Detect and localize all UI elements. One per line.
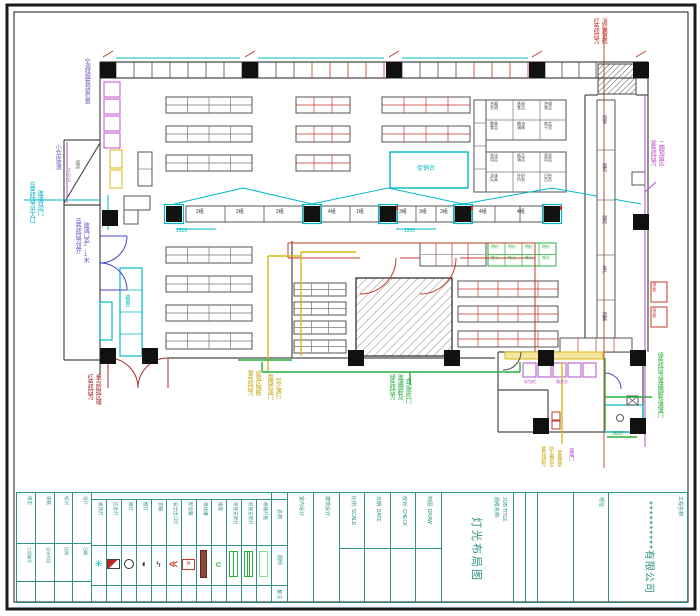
company-name: **********有限公司: [643, 501, 653, 594]
title-block-divider: [339, 548, 441, 549]
sign-col-value: 日期: [83, 547, 87, 555]
legend-item-name: 双管支架灯: [248, 502, 253, 525]
legend-item-name: 格栅灯盘: [263, 502, 268, 520]
socket-icon: ⊂: [212, 547, 225, 581]
job-title-label: 图纸名称:: [493, 497, 498, 518]
legend-item-name: 筒灯: [128, 502, 133, 511]
address-label: 地址:: [598, 497, 603, 508]
title-block: 工程名称: **********有限公司 地址: 图纸名称: JOB TITLE…: [16, 492, 688, 603]
grille-lamp-icon: [257, 547, 270, 581]
double-tube-light-icon: [242, 547, 255, 581]
sign-col-value: 工程编号: [27, 547, 31, 563]
legend-item-name: 单管支架灯: [233, 502, 238, 525]
exit-light-icon: ≪: [167, 547, 180, 581]
cad-drawing-sheet: 空调排烟管预留位置小仓库坡道蓝色线段为出入口玻璃自动门蓝色线段为双开玻璃门宽2.…: [0, 0, 700, 616]
title-block-divider: [17, 581, 91, 582]
busbar-icon: [197, 547, 210, 581]
sign-col-label: 审定: [27, 496, 32, 505]
ceiling-lamp-icon: ✳: [92, 547, 105, 581]
title-block-divider: [537, 493, 538, 602]
legend-item-name: 安全出口灯: [173, 502, 178, 525]
wall-lamp-icon: ◖: [137, 547, 150, 581]
legend-item-name: 应急灯: [113, 502, 118, 516]
job-title: 灯光布局图: [470, 517, 481, 582]
sign-col-value: 设计阶段: [46, 547, 50, 563]
title-block-divider: [35, 493, 36, 602]
downlight-icon: [122, 547, 135, 581]
emergency-light-icon: [107, 547, 120, 581]
single-tube-light-icon: [227, 547, 240, 581]
speaker-icon: ϟ: [152, 547, 165, 581]
field-label: 校对: CHECK: [401, 496, 406, 526]
title-block-divider: [17, 543, 91, 544]
title-block-divider: [287, 493, 288, 602]
sign-col-label: 设计: [82, 496, 87, 505]
title-block-divider: [608, 493, 609, 602]
field-label: 室内设计: [298, 496, 303, 516]
distribution-box-icon: ✕: [182, 547, 195, 581]
title-block-divider: [525, 493, 526, 602]
sign-col-value: 比例: [64, 547, 68, 555]
legend-item-name: 壁灯: [143, 502, 148, 511]
legend-item-name: 音箱: [158, 502, 163, 511]
legend-item-name: 吸顶灯: [98, 502, 103, 516]
title-block-divider: [54, 493, 55, 602]
title-block-divider: [313, 493, 314, 602]
legend-item-name: 配电箱: [188, 502, 193, 516]
project-name-label: 工程名称:: [677, 496, 682, 517]
legend-header-symbol: 图例: [276, 555, 281, 565]
title-block-divider: [573, 493, 574, 602]
field-label: 日期: DATE: [375, 496, 380, 522]
field-label: 建筑设计: [324, 496, 329, 516]
plan-geometry: [24, 28, 667, 468]
title-block-divider: [72, 493, 73, 602]
legend-item-name: 母线槽: [203, 502, 208, 516]
job-title-label-en: JOB TITLE: [501, 497, 506, 522]
field-label: 比例: SCALE: [350, 496, 355, 525]
title-block-divider: [513, 493, 514, 602]
legend-header-note: 备注: [276, 589, 281, 599]
title-block-divider: [441, 493, 442, 602]
sign-col-label: 校对: [64, 496, 69, 505]
legend-item-name: 插座: [218, 502, 223, 511]
sign-col-label: 审核: [45, 496, 50, 505]
legend-header-name: 名称: [276, 509, 281, 519]
field-label: 制图: DRAW: [426, 496, 431, 524]
